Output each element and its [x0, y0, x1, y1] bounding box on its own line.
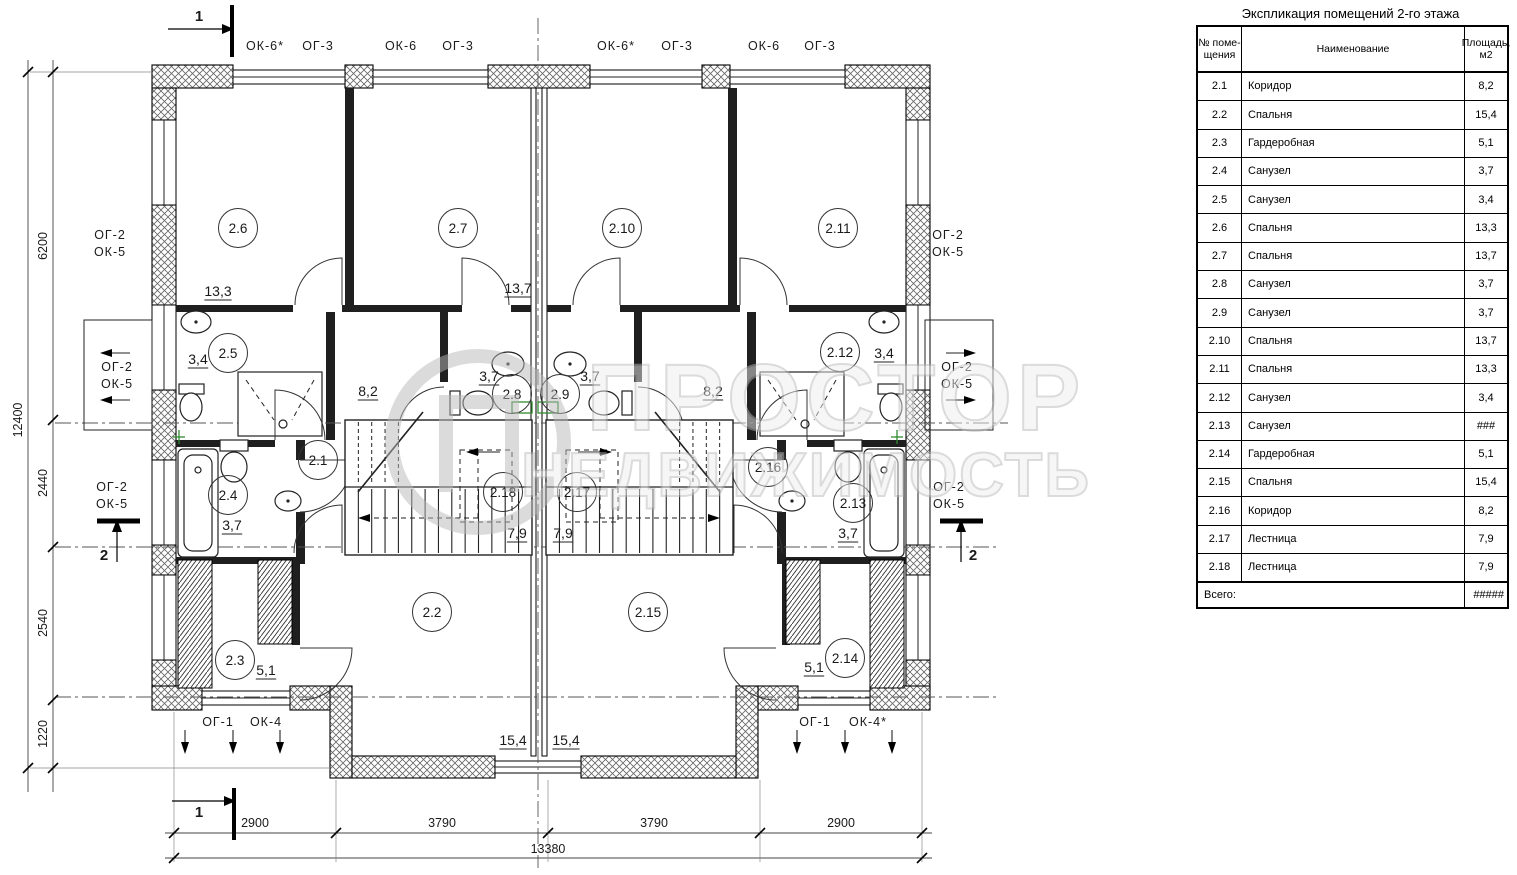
window-mark-label: ОК-5	[101, 377, 133, 391]
row-name: Санузел	[1242, 158, 1465, 186]
dimension-label: 12400	[11, 403, 25, 438]
sink-icon	[275, 491, 301, 511]
row-name: Гардеробная	[1242, 130, 1465, 158]
row-area: 15,4	[1465, 469, 1507, 497]
dimension-label: 2440	[36, 469, 50, 497]
dimension-label: 6200	[36, 232, 50, 260]
row-number: 2.14	[1198, 441, 1242, 469]
window-mark-label: ОГ-2	[96, 480, 128, 494]
window-mark-label: ОК-5	[96, 497, 128, 511]
row-name: Спальня	[1242, 243, 1465, 271]
window-mark-label: ОК-6	[385, 39, 417, 53]
col-header-number: № поме-щения	[1198, 27, 1242, 73]
room-number-label: 2.14	[832, 651, 859, 666]
room-number-label: 2.5	[219, 346, 238, 361]
row-name: Санузел	[1242, 299, 1465, 327]
row-number: 2.12	[1198, 384, 1242, 412]
dimension-label: 13380	[531, 842, 566, 856]
row-area: 3,4	[1465, 186, 1507, 214]
watermark-line2: НЕДВИЖИМОСТЬ	[521, 441, 1091, 510]
window-mark-label: ОГ-3	[804, 39, 836, 53]
row-area: 3,7	[1465, 158, 1507, 186]
room-area-label: 3,7	[838, 525, 858, 541]
row-number: 2.11	[1198, 356, 1242, 384]
row-area: 8,2	[1465, 73, 1507, 101]
row-name: Лестница	[1242, 554, 1465, 582]
room-number-label: 2.4	[219, 488, 238, 503]
room-area-label: 3,7	[479, 368, 499, 384]
section-mark-label: 1	[195, 8, 203, 25]
row-number: 2.2	[1198, 101, 1242, 129]
explication-table: № поме-щения Наименование Площадь, м2 2.…	[1196, 25, 1509, 609]
room-number-label: 2.3	[226, 653, 245, 668]
row-number: 2.5	[1198, 186, 1242, 214]
row-name: Коридор	[1242, 497, 1465, 525]
row-number: 2.8	[1198, 271, 1242, 299]
row-area: 13,3	[1465, 356, 1507, 384]
floor-plan-page: ОК-6*ОГ-3ОК-6ОГ-3ОК-6*ОГ-3ОК-6ОГ-3ОГ-2ОК…	[0, 0, 1517, 875]
row-area: 13,7	[1465, 243, 1507, 271]
window-mark-label: ОК-6*	[246, 39, 284, 53]
row-name: Спальня	[1242, 356, 1465, 384]
room-number-label: 2.15	[635, 605, 661, 620]
sink-icon	[869, 311, 899, 333]
window-mark-label: ОК-6	[748, 39, 780, 53]
row-area: 15,4	[1465, 101, 1507, 129]
row-area: 3,7	[1465, 299, 1507, 327]
room-number-label: 2.7	[449, 221, 468, 236]
row-name: Спальня	[1242, 214, 1465, 242]
window-mark-label: ОК-5	[94, 245, 126, 259]
room-area-label: 15,4	[499, 732, 526, 748]
col-header-name: Наименование	[1242, 27, 1465, 73]
row-number: 2.15	[1198, 469, 1242, 497]
room-area-label: 13,3	[204, 283, 231, 299]
row-area: ###	[1465, 413, 1507, 441]
col-header-area: Площадь, м2	[1465, 27, 1507, 73]
room-area-label: 3,7	[222, 517, 242, 533]
row-name: Гардеробная	[1242, 441, 1465, 469]
window-mark-label: ОГ-3	[661, 39, 693, 53]
window-mark-label: ОК-4	[250, 715, 282, 729]
row-number: 2.3	[1198, 130, 1242, 158]
row-name: Коридор	[1242, 73, 1465, 101]
closet-shelving	[178, 560, 904, 688]
row-name: Санузел	[1242, 271, 1465, 299]
party-wall	[531, 88, 547, 756]
row-name: Санузел	[1242, 384, 1465, 412]
row-area: 13,7	[1465, 328, 1507, 356]
row-number: 2.1	[1198, 73, 1242, 101]
window-mark-label: ОК-4*	[849, 715, 887, 729]
row-area: 8,2	[1465, 497, 1507, 525]
dimension-label: 1220	[36, 720, 50, 748]
row-number: 2.18	[1198, 554, 1242, 582]
row-area: 13,3	[1465, 214, 1507, 242]
room-area-label: 7,9	[553, 525, 573, 541]
room-number-label: 2.11	[825, 221, 850, 236]
row-area: 3,7	[1465, 271, 1507, 299]
toilet-icon	[179, 384, 204, 421]
window-mark-label: ОГ-2	[94, 228, 126, 242]
dimension-label: 3790	[428, 816, 456, 830]
section-mark-label: 1	[195, 804, 203, 821]
room-number-label: 2.1	[309, 453, 328, 468]
row-number: 2.13	[1198, 413, 1242, 441]
window-mark-label: ОГ-1	[202, 715, 234, 729]
row-number: 2.7	[1198, 243, 1242, 271]
explication-title: Экспликация помещений 2-го этажа	[1196, 6, 1505, 21]
dimension-label: 2540	[36, 609, 50, 637]
total-value: #####	[1465, 582, 1507, 607]
room-area-label: 3,4	[188, 351, 208, 367]
row-number: 2.17	[1198, 526, 1242, 554]
window-mark-label: ОГ-1	[799, 715, 831, 729]
dimension-label: 3790	[640, 816, 668, 830]
room-number-label: 2.2	[423, 605, 442, 620]
room-area-label: 15,4	[552, 732, 579, 748]
row-name: Санузел	[1242, 186, 1465, 214]
room-number-label: 2.10	[609, 221, 635, 236]
row-area: 5,1	[1465, 130, 1507, 158]
row-name: Спальня	[1242, 101, 1465, 129]
dimension-label: 2900	[827, 816, 855, 830]
row-number: 2.6	[1198, 214, 1242, 242]
room-area-label: 8,2	[358, 383, 378, 399]
window-mark-label: ОГ-2	[932, 228, 964, 242]
row-area: 5,1	[1465, 441, 1507, 469]
row-number: 2.16	[1198, 497, 1242, 525]
row-name: Лестница	[1242, 526, 1465, 554]
section-mark-label: 2	[969, 547, 977, 564]
floor-plan-drawing: ОК-6*ОГ-3ОК-6ОГ-3ОК-6*ОГ-3ОК-6ОГ-3ОГ-2ОК…	[0, 0, 1110, 875]
row-number: 2.9	[1198, 299, 1242, 327]
room-number-label: 2.6	[229, 221, 248, 236]
row-number: 2.4	[1198, 158, 1242, 186]
window-mark-label: ОК-6*	[597, 39, 635, 53]
section-mark-label: 2	[100, 547, 108, 564]
window-mark-label: ОГ-3	[302, 39, 334, 53]
window-mark-label: ОГ-3	[442, 39, 474, 53]
room-area-label: 13,7	[504, 280, 531, 296]
bathtub-icon	[178, 449, 218, 557]
sink-icon	[181, 311, 211, 333]
row-area: 7,9	[1465, 526, 1507, 554]
row-name: Спальня	[1242, 328, 1465, 356]
room-area-label: 5,1	[804, 659, 824, 675]
row-name: Спальня	[1242, 469, 1465, 497]
total-label: Всего:	[1198, 582, 1465, 607]
row-area: 7,9	[1465, 554, 1507, 582]
window-mark-label: ОК-5	[932, 245, 964, 259]
dimension-label: 2900	[241, 816, 269, 830]
row-area: 3,4	[1465, 384, 1507, 412]
room-area-label: 5,1	[256, 662, 276, 678]
row-number: 2.10	[1198, 328, 1242, 356]
row-name: Санузел	[1242, 413, 1465, 441]
watermark-line1: ПРОСТОР	[587, 345, 1085, 451]
window-mark-label: ОГ-2	[101, 360, 133, 374]
